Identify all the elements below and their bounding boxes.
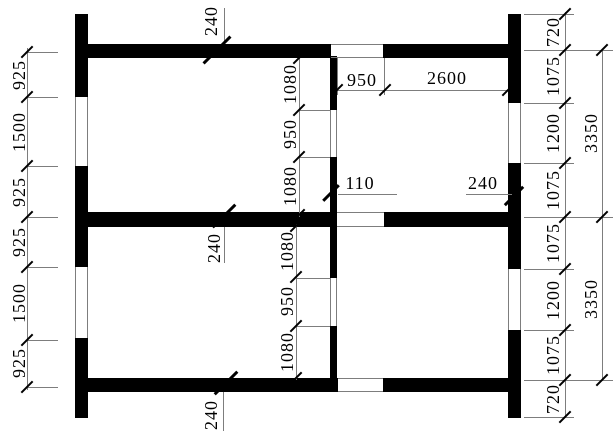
left-wall-segment bbox=[75, 14, 88, 97]
dim-label-1080: 1080 bbox=[278, 231, 296, 271]
partition-wall-segment bbox=[330, 157, 337, 278]
dim-label-1200: 1200 bbox=[544, 113, 562, 153]
extension-line bbox=[296, 326, 330, 327]
dim-label-1075: 1075 bbox=[544, 170, 562, 210]
dim-label-950: 950 bbox=[347, 71, 377, 89]
dim-label-1080: 1080 bbox=[281, 64, 299, 104]
floor-plan-drawing: 925 1500 925 925 1500 925 240 240 240 24… bbox=[0, 0, 616, 434]
dim-label-1080: 1080 bbox=[278, 332, 296, 372]
extension-line bbox=[27, 267, 58, 268]
extension-line bbox=[27, 387, 58, 388]
partition-wall-segment bbox=[330, 326, 337, 392]
dim-label-1200: 1200 bbox=[544, 280, 562, 320]
dim-label-720: 720 bbox=[544, 384, 562, 414]
dim-label-240-top: 240 bbox=[202, 6, 220, 36]
middle-wall-segment bbox=[384, 212, 508, 227]
right-wall-segment bbox=[508, 14, 521, 103]
dim-label-3350: 3350 bbox=[582, 113, 600, 153]
extension-line bbox=[524, 163, 574, 164]
extension-line bbox=[299, 110, 330, 111]
extension-line bbox=[524, 14, 574, 15]
extension-line bbox=[27, 340, 58, 341]
door-jamb-outline bbox=[330, 278, 331, 326]
dim-label-925: 925 bbox=[10, 227, 28, 257]
dim-label-1075: 1075 bbox=[544, 223, 562, 263]
extension-line bbox=[524, 269, 574, 270]
dim-label-1075: 1075 bbox=[544, 56, 562, 96]
extension-line bbox=[524, 103, 574, 104]
dim-label-240-right: 240 bbox=[468, 174, 498, 192]
extension-line bbox=[27, 97, 58, 98]
dim-label-720: 720 bbox=[544, 17, 562, 47]
dim-label-950: 950 bbox=[278, 286, 296, 316]
dim-label-240-middle: 240 bbox=[205, 233, 223, 263]
dimension-line bbox=[337, 90, 508, 91]
dim-label-1500: 1500 bbox=[10, 283, 28, 323]
dim-label-110: 110 bbox=[345, 174, 374, 192]
dim-label-2600: 2600 bbox=[427, 69, 467, 87]
extension-line bbox=[27, 52, 58, 53]
dim-label-925: 925 bbox=[10, 177, 28, 207]
window-outline bbox=[75, 267, 76, 338]
opening-outline bbox=[338, 378, 383, 379]
opening-outline bbox=[338, 391, 383, 392]
leader-line bbox=[223, 392, 224, 431]
left-wall-segment bbox=[75, 338, 88, 418]
extension-line bbox=[27, 166, 58, 167]
extension-line bbox=[27, 217, 58, 218]
dim-label-1075: 1075 bbox=[544, 335, 562, 375]
dim-label-1080: 1080 bbox=[281, 166, 299, 206]
window-outline bbox=[87, 267, 88, 338]
dim-label-950: 950 bbox=[281, 119, 299, 149]
window-outline bbox=[508, 269, 509, 330]
dim-label-3350: 3350 bbox=[582, 279, 600, 319]
opening-outline bbox=[337, 212, 384, 213]
window-outline bbox=[508, 103, 509, 163]
opening-outline bbox=[331, 44, 383, 45]
opening-outline bbox=[337, 226, 384, 227]
left-wall-segment bbox=[75, 166, 88, 267]
right-wall-segment bbox=[508, 330, 521, 418]
window-outline bbox=[520, 103, 521, 163]
extension-line bbox=[524, 417, 574, 418]
dim-label-1500: 1500 bbox=[10, 112, 28, 152]
extension-line bbox=[296, 278, 330, 279]
leader-line bbox=[224, 227, 225, 263]
door-jamb-outline bbox=[330, 110, 331, 157]
extension-line bbox=[299, 157, 330, 158]
opening-outline bbox=[331, 57, 383, 58]
extension-line bbox=[524, 330, 574, 331]
window-outline bbox=[87, 97, 88, 166]
bottom-wall-segment bbox=[88, 378, 338, 392]
window-outline bbox=[520, 269, 521, 330]
door-jamb-outline bbox=[336, 278, 337, 326]
leader-line bbox=[466, 194, 512, 195]
window-outline bbox=[75, 97, 76, 166]
dim-label-925: 925 bbox=[10, 348, 28, 378]
top-wall-segment bbox=[383, 44, 508, 58]
partition-wall-segment bbox=[330, 56, 337, 110]
bottom-wall-segment bbox=[383, 378, 508, 392]
right-wall-segment bbox=[508, 163, 521, 269]
dim-label-925: 925 bbox=[10, 60, 28, 90]
door-jamb-outline bbox=[336, 110, 337, 157]
dim-label-240-bottom: 240 bbox=[202, 400, 220, 430]
leader-line bbox=[338, 194, 397, 195]
